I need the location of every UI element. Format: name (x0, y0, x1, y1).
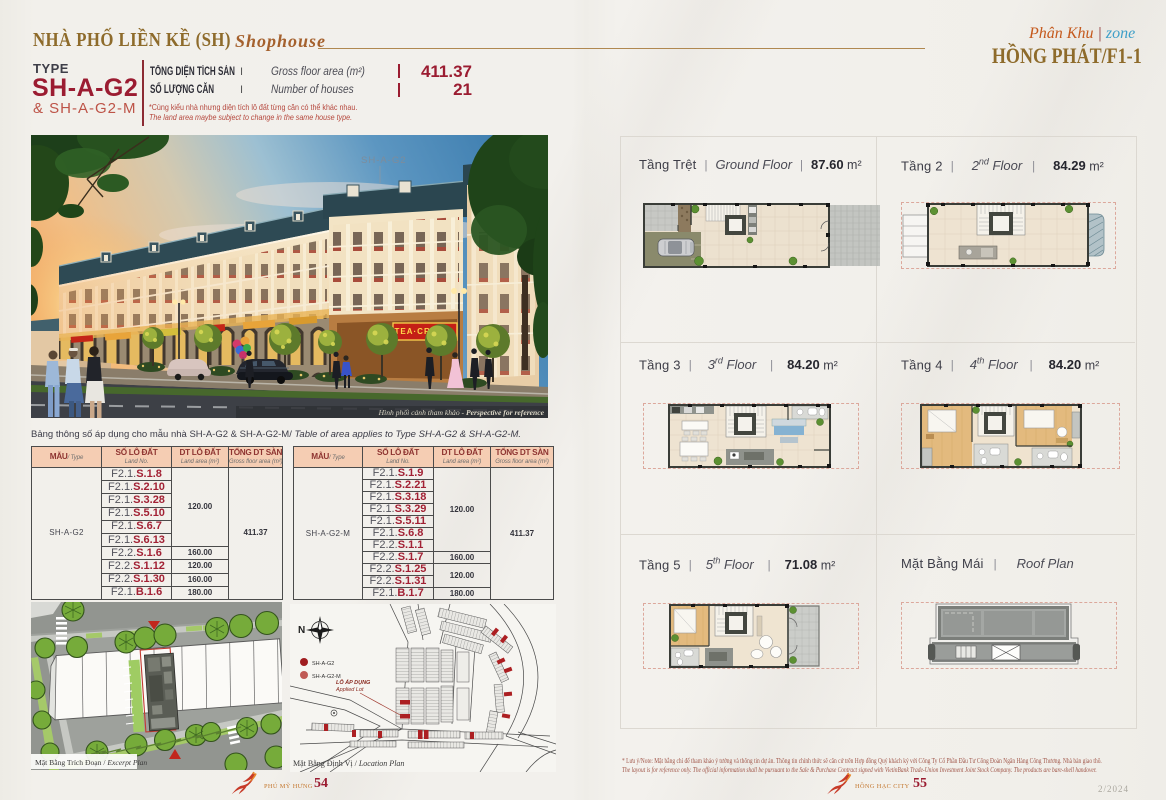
svg-text:SH-A-G2: SH-A-G2 (312, 661, 334, 667)
svg-text:SH-A-G2: SH-A-G2 (361, 155, 407, 166)
svg-text:Applied Lot: Applied Lot (335, 687, 364, 693)
svg-text:LÔ ÁP DỤNG: LÔ ÁP DỤNG (336, 678, 371, 686)
svg-text:N: N (298, 625, 305, 636)
svg-text:Hình phối cảnh tham khảo - Per: Hình phối cảnh tham khảo - Perspective f… (378, 408, 545, 417)
svg-text:Mặt Bằng Trích Đoạn / Excerpt: Mặt Bằng Trích Đoạn / Excerpt Plan (35, 758, 147, 767)
svg-text:Mặt Bằng Định Vị / Location Pl: Mặt Bằng Định Vị / Location Plan (293, 759, 404, 768)
